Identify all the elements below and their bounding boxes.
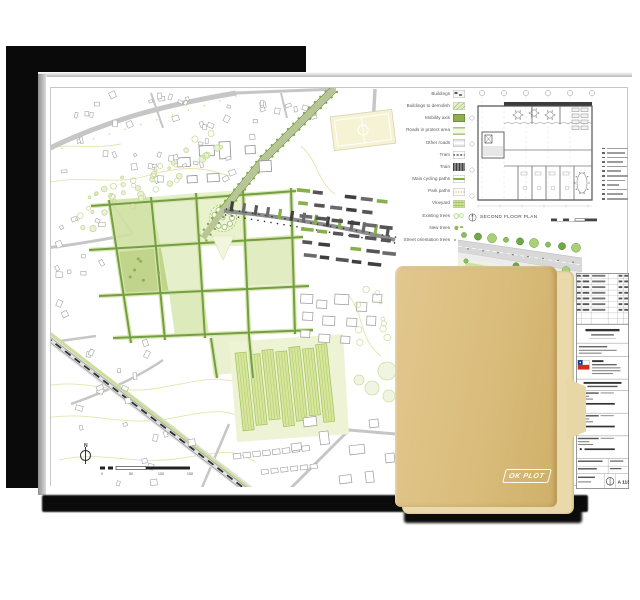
legend-item-label: Buildings to demolish (407, 104, 450, 109)
second-floor-plan (468, 88, 600, 212)
folder-logo-text: OK PLOT (509, 473, 546, 480)
room-list-row (602, 197, 628, 202)
legend-item-label: Street orientation trees (404, 238, 450, 243)
legend-item-label: New trees (429, 226, 450, 231)
mockup-stage: N 0 50 100 150 BuildingsBuildings to dem… (0, 0, 640, 600)
sheet-number: A 113 (618, 480, 629, 486)
floor-plan-caption: SECOND FLOOR PLAN (468, 213, 537, 222)
legend-item-label: Vineyard (432, 201, 450, 206)
plan-north-icon (468, 213, 477, 222)
north-needle (85, 447, 86, 464)
scale-label-150: 150 (187, 472, 193, 476)
masterplan-map (51, 88, 397, 487)
scale-labels: 0 50 100 150 (100, 472, 192, 478)
vineyard (229, 334, 349, 442)
scale-label-50: 50 (129, 472, 133, 476)
map-legend: BuildingsBuildings to demolishMobility a… (396, 88, 465, 246)
folder-logo-badge: OK PLOT (502, 469, 552, 483)
map-north-and-scale: N 0 50 100 150 (60, 440, 240, 480)
title-block: A 113 (576, 267, 629, 495)
folder-front-cover[interactable]: OK PLOT (395, 266, 557, 507)
legend-item-label: Roads in protect area (406, 128, 450, 133)
legend-item: Street orientation trees (396, 234, 465, 246)
legend-item-label: Buildings (431, 92, 450, 97)
legend-item-label: Main cycling paths (412, 177, 450, 182)
legend-item-label: Tram (439, 153, 450, 158)
scale-label-0: 0 (101, 472, 103, 476)
chile-flag-icon (578, 360, 589, 369)
legend-item-label: Other roads (426, 141, 450, 146)
legend-item-label: Train (440, 165, 450, 170)
legend-item-label: Mobility axis (425, 116, 450, 121)
legend-item-label: Existing trees (422, 214, 450, 219)
floor-plan-caption-text: SECOND FLOOR PLAN (480, 215, 537, 220)
folder-tab (566, 378, 586, 440)
sports-pitch (330, 109, 396, 150)
scale-label-100: 100 (158, 472, 164, 476)
plan-scale-bar (551, 217, 597, 223)
scale-bar (100, 466, 192, 471)
legend-item-label: Park paths (428, 189, 450, 194)
black-backing-left (6, 46, 38, 488)
room-schedule-list (602, 146, 628, 201)
